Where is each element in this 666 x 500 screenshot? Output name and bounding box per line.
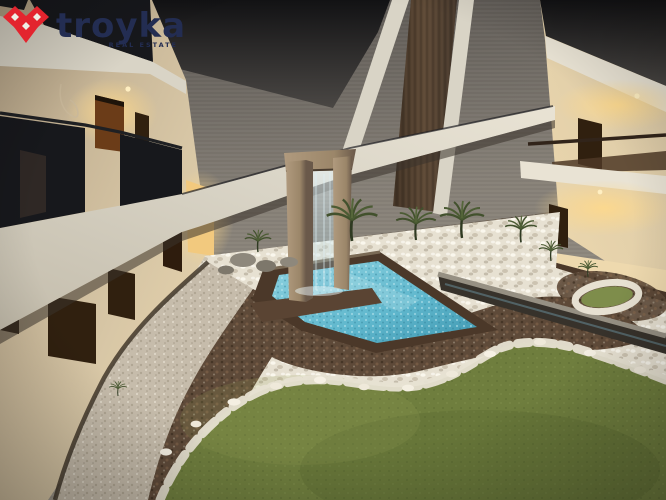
brand-tagline: REAL ESTATE — [109, 41, 178, 49]
photo-vignette — [0, 0, 666, 500]
brand-wordmark: troyka — [56, 6, 186, 46]
scene-canvas — [0, 0, 666, 500]
courtyard-photo: troyka REAL ESTATE — [0, 0, 666, 500]
troyka-diamond-heart-icon — [3, 6, 49, 43]
watermark-logo: troyka REAL ESTATE — [0, 0, 200, 54]
